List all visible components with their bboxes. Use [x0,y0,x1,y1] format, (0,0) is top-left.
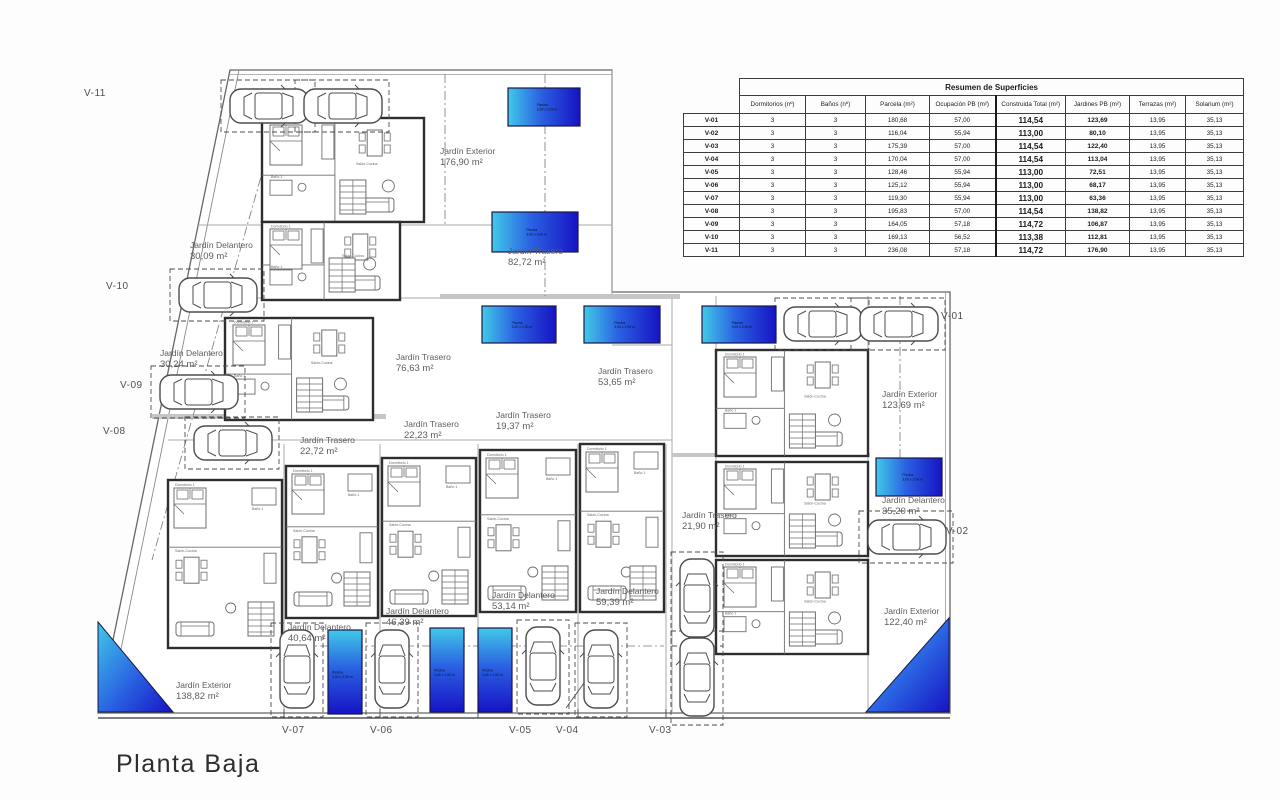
svg-text:Dormitorio 1: Dormitorio 1 [175,483,195,487]
table-column-header: Construida Total (m²) [996,96,1066,114]
table-cell: 13,95 [1130,205,1186,218]
car-icon [868,516,946,558]
table-cell: V-02 [684,127,740,140]
table-cell: 116,04 [866,127,930,140]
unit-label: V-04 [556,725,579,736]
svg-text:Baño 1: Baño 1 [348,493,359,497]
svg-text:Baño 1: Baño 1 [271,175,282,179]
table-cell: 13,95 [1130,218,1186,231]
table-cell: 170,04 [866,153,930,166]
garden-area: 22,72 m² [300,446,355,458]
table-cell: 3 [806,231,866,244]
summary-table: Resumen de SuperficiesDormitorios (nº)Ba… [683,78,1243,257]
table-cell: 106,87 [1066,218,1130,231]
table-cell: 55,94 [930,192,996,205]
car-icon [860,303,938,345]
table-cell: 3 [740,179,806,192]
svg-text:3,00 x 2,00 m: 3,00 x 2,00 m [332,675,353,679]
svg-text:Dormitorio 1: Dormitorio 1 [389,461,409,465]
table-cell: 114,54 [996,140,1066,153]
table-cell: 35,13 [1186,127,1244,140]
svg-text:Dormitorio 1: Dormitorio 1 [293,469,313,473]
svg-text:Baño 1: Baño 1 [252,507,263,511]
house: Dormitorio 1Salón-CocinaBaño 1 [716,350,868,456]
table-cell: 55,94 [930,179,996,192]
table-cell: 113,04 [1066,153,1130,166]
garden-name: Jardín Delantero [882,495,945,506]
garden-label: Jardín Delantero40,64 m² [288,622,351,645]
table-cell: 3 [740,231,806,244]
garden-area: 176,90 m² [440,157,495,169]
svg-text:3,00 x 2,00 m: 3,00 x 2,00 m [537,107,558,111]
table-cell: 13,95 [1130,179,1186,192]
table-cell: 3 [806,153,866,166]
table-cell: 57,18 [930,218,996,231]
table-cell: 13,95 [1130,140,1186,153]
garden-label: Jardín Delantero53,14 m² [492,590,555,613]
table-cell: 57,18 [930,244,996,257]
table-cell: 68,17 [1066,179,1130,192]
garden-name: Jardín Trasero [682,510,737,521]
table-column-header: Parcela (m²) [866,96,930,114]
garden-name: Jardín Trasero [396,352,451,363]
garden-name: Jardín Exterior [176,680,231,691]
svg-text:3,00 x 2,00 m: 3,00 x 2,00 m [526,232,547,236]
svg-text:3,00 x 2,00 m: 3,00 x 2,00 m [902,477,923,481]
garden-label: Jardín Exterior176,90 m² [440,146,495,169]
table-cell: 55,94 [930,166,996,179]
garden-area: 22,23 m² [404,430,459,442]
house: Dormitorio 1Salón-CocinaBaño 1 [286,466,378,618]
table-cell: 57,00 [930,205,996,218]
table-cell: V-11 [684,244,740,257]
page-title: Planta Baja [116,750,260,779]
garden-area: 122,40 m² [884,617,939,629]
unit-label: V-02 [946,526,969,537]
garden-name: Jardín Exterior [882,389,937,400]
garden-area: 82,72 m² [508,257,563,269]
house: Dormitorio 1Salón-CocinaBaño 1 [480,450,576,612]
table-cell: 113,00 [996,127,1066,140]
pool: Piscina3,00 x 2,00 m [508,88,580,126]
house: Dormitorio 1Salón-CocinaBaño 1 [716,462,868,556]
garden-name: Jardín Delantero [288,622,351,633]
table-cell: 13,95 [1130,127,1186,140]
table-cell: 3 [740,205,806,218]
table-cell: 3 [806,114,866,127]
svg-text:Salón-Cocina: Salón-Cocina [587,513,609,517]
garden-label: Jardín Delantero46,39 m² [386,606,449,629]
table-cell: 169,13 [866,231,930,244]
car-icon [522,627,564,705]
table-row: V-0933164,0557,18114,72106,8713,9535,13 [684,218,1244,231]
garden-name: Jardín Delantero [160,348,223,359]
table-cell: V-03 [684,140,740,153]
garden-label: Jardín Exterior123,69 m² [882,389,937,412]
garden-name: Jardín Delantero [386,606,449,617]
svg-text:3,00 x 2,00 m: 3,00 x 2,00 m [732,325,753,329]
table-cell: 72,51 [1066,166,1130,179]
house: Dormitorio 1Salón-CocinaBaño 1 [168,480,282,648]
table-cell: 3 [806,192,866,205]
car-icon [160,371,238,413]
table-cell: 113,00 [996,166,1066,179]
svg-text:Dormitorio 1: Dormitorio 1 [271,225,291,229]
svg-text:Baño 1: Baño 1 [446,485,457,489]
table-row: V-0333175,3957,00114,54122,4013,9535,13 [684,140,1244,153]
table-cell: 35,13 [1186,153,1244,166]
table-cell: 35,13 [1186,179,1244,192]
garden-label: Jardín Delantero30,24 m² [160,348,223,371]
table-row: V-0533128,4655,94113,0072,5113,9535,13 [684,166,1244,179]
svg-text:Baño 1: Baño 1 [634,471,645,475]
unit-label: V-07 [282,725,305,736]
table-cell: 176,90 [1066,244,1130,257]
unit-label: V-08 [103,426,126,437]
table-cell: 3 [740,153,806,166]
table-row: V-0233116,0455,94113,0080,1013,9535,13 [684,127,1244,140]
table-cell: 35,13 [1186,192,1244,205]
table-cell: 35,13 [1186,218,1244,231]
garden-label: Jardín Exterior122,40 m² [884,606,939,629]
table-row: V-0133180,6857,00114,54123,6913,9535,13 [684,114,1244,127]
table-cell: 55,94 [930,127,996,140]
garden-label: Jardín Delantero30,09 m² [190,240,253,263]
house: Dormitorio 1Salón-CocinaBaño 1 [262,222,400,300]
garden-area: 138,82 m² [176,691,231,703]
table-cell: 3 [740,114,806,127]
table-cell: 13,95 [1130,114,1186,127]
garden-name: Jardín Delantero [190,240,253,251]
garden-area: 59,39 m² [596,597,659,609]
table-row: V-0433170,0457,00114,54113,0413,9535,13 [684,153,1244,166]
car-icon [371,630,413,708]
table-cell: 113,00 [996,192,1066,205]
unit-label: V-09 [120,380,143,391]
table-cell: 125,12 [866,179,930,192]
garden-label: Jardín Delantero35,20 m² [882,495,945,518]
pool: Piscina3,00 x 2,00 m [478,628,512,712]
surface-summary: Resumen de SuperficiesDormitorios (nº)Ba… [683,78,1244,257]
table-cell: 114,54 [996,153,1066,166]
svg-text:Salón-Cocina: Salón-Cocina [487,517,509,521]
table-cell: 114,54 [996,114,1066,127]
table-cell: 3 [806,127,866,140]
svg-text:Dormitorio 1: Dormitorio 1 [725,465,745,469]
table-cell: 57,00 [930,140,996,153]
table-cell: 3 [806,140,866,153]
table-cell: 3 [740,140,806,153]
table-cell: 3 [740,218,806,231]
car-icon [230,85,308,127]
svg-text:3,00 x 2,00 m: 3,00 x 2,00 m [614,325,635,329]
table-cell: V-10 [684,231,740,244]
garden-label: Jardín Trasero22,23 m² [404,419,459,442]
table-cell: 80,10 [1066,127,1130,140]
garden-name: Jardín Trasero [300,435,355,446]
garden-label: Jardín Trasero76,63 m² [396,352,451,375]
table-cell: 13,95 [1130,153,1186,166]
svg-text:Salón-Cocina: Salón-Cocina [804,395,826,399]
table-cell: 35,13 [1186,166,1244,179]
garden-name: Jardín Trasero [508,246,563,257]
table-row: V-0633125,1255,94113,0068,1713,9535,13 [684,179,1244,192]
table-cell: 3 [740,192,806,205]
svg-text:Salón-Cocina: Salón-Cocina [311,361,333,365]
svg-text:Dormitorio 1: Dormitorio 1 [725,563,745,567]
table-cell: V-04 [684,153,740,166]
table-cell: 63,36 [1066,192,1130,205]
table-cell: 113,00 [996,179,1066,192]
svg-text:3,00 x 2,00 m: 3,00 x 2,00 m [482,673,503,677]
house: Dormitorio 1Salón-CocinaBaño 1 [382,458,476,616]
garden-area: 30,09 m² [190,251,253,263]
house: Dormitorio 1Salón-CocinaBaño 1 [225,318,373,420]
car-icon [676,638,718,716]
svg-text:3,00 x 2,00 m: 3,00 x 2,00 m [434,673,455,677]
unit-label: V-05 [509,725,532,736]
garden-area: 46,39 m² [386,617,449,629]
garden-area: 35,20 m² [882,506,945,518]
table-cell: 113,38 [996,231,1066,244]
table-column-header: Jardines PB (m²) [1066,96,1130,114]
svg-text:Baño 1: Baño 1 [234,374,245,378]
svg-text:Salón-Cocina: Salón-Cocina [804,599,826,603]
garden-label: Jardín Trasero82,72 m² [508,246,563,269]
car-icon [676,559,718,637]
table-cell: 123,69 [1066,114,1130,127]
garden-label: Jardín Trasero21,90 m² [682,510,737,533]
table-cell: 35,13 [1186,205,1244,218]
svg-text:Salón-Cocina: Salón-Cocina [389,523,411,527]
svg-text:Baño 1: Baño 1 [725,612,736,616]
table-cell: V-08 [684,205,740,218]
table-cell: 138,82 [1066,205,1130,218]
table-cell: 3 [740,244,806,257]
table-cell: 13,95 [1130,244,1186,257]
table-cell: V-06 [684,179,740,192]
garden-label: Jardín Trasero19,37 m² [496,410,551,433]
table-title: Resumen de Superficies [740,79,1244,96]
table-column-header: Solarium (m²) [1186,96,1244,114]
pool: Piscina3,00 x 2,00 m [482,306,556,343]
table-cell: 236,08 [866,244,930,257]
table-cell: 57,00 [930,114,996,127]
table-cell: 3 [806,179,866,192]
table-cell: V-05 [684,166,740,179]
garden-area: 21,90 m² [682,521,737,533]
table-cell: 175,39 [866,140,930,153]
table-column-header: Baños (nº) [806,96,866,114]
garden-area: 40,64 m² [288,633,351,645]
table-column-header: Dormitorios (nº) [740,96,806,114]
table-cell: 3 [740,127,806,140]
table-cell: V-09 [684,218,740,231]
svg-text:Salón-Cocina: Salón-Cocina [175,549,197,553]
table-row: V-1033169,1356,52113,38112,8113,9535,13 [684,231,1244,244]
pool: Piscina3,00 x 2,00 m [430,628,464,712]
garden-label: Jardín Exterior138,82 m² [176,680,231,703]
table-row: V-0833195,8357,00114,54138,8213,9535,13 [684,205,1244,218]
garden-name: Jardín Delantero [492,590,555,601]
garden-name: Jardín Delantero [596,586,659,597]
table-cell: 114,54 [996,205,1066,218]
garden-name: Jardín Trasero [496,410,551,421]
svg-text:Dormitorio 1: Dormitorio 1 [487,453,507,457]
table-cell: 3 [806,244,866,257]
house: Dormitorio 1Salón-CocinaBaño 1 [262,118,424,222]
table-cell: 35,13 [1186,114,1244,127]
svg-text:Baño 1: Baño 1 [271,265,282,269]
pool: Piscina3,00 x 2,00 m [702,306,776,343]
table-cell: 35,13 [1186,231,1244,244]
unit-label: V-06 [370,725,393,736]
house: Dormitorio 1Salón-CocinaBaño 1 [716,560,868,654]
table-cell: 164,05 [866,218,930,231]
table-cell: 57,00 [930,153,996,166]
svg-text:3,00 x 2,00 m: 3,00 x 2,00 m [512,325,533,329]
table-cell: 112,81 [1066,231,1130,244]
table-cell: 114,72 [996,218,1066,231]
floor-plan-page: Dormitorio 1Salón-CocinaBaño 1Dormitorio… [0,0,1280,800]
unit-label: V-11 [84,88,106,99]
car-icon [580,630,622,708]
table-cell: 3 [806,166,866,179]
svg-text:Baño 1: Baño 1 [546,477,557,481]
table-row: V-0733119,3055,94113,0063,3613,9535,13 [684,192,1244,205]
svg-text:Dormitorio 1: Dormitorio 1 [587,447,607,451]
garden-name: Jardín Trasero [598,366,653,377]
garden-name: Jardín Exterior [440,146,495,157]
garden-area: 76,63 m² [396,363,451,375]
table-cell: 119,30 [866,192,930,205]
table-column-header: Terrazas (m²) [1130,96,1186,114]
pool: Piscina3,00 x 2,00 m [876,458,942,496]
table-cell: 3 [806,205,866,218]
car-icon [194,422,272,464]
table-cell: 122,40 [1066,140,1130,153]
table-cell: 3 [806,218,866,231]
garden-area: 30,24 m² [160,359,223,371]
garden-area: 19,37 m² [496,421,551,433]
garden-label: Jardín Trasero22,72 m² [300,435,355,458]
svg-text:Salón-Cocina: Salón-Cocina [342,254,364,258]
table-cell: 114,72 [996,244,1066,257]
table-cell: V-07 [684,192,740,205]
pool: Piscina3,00 x 2,00 m [584,306,660,343]
table-cell: 195,83 [866,205,930,218]
garden-area: 53,65 m² [598,377,653,389]
table-cell: 13,95 [1130,192,1186,205]
garden-label: Jardín Trasero53,65 m² [598,366,653,389]
svg-text:Salón-Cocina: Salón-Cocina [293,529,315,533]
garden-label: Jardín Delantero59,39 m² [596,586,659,609]
table-cell: 35,13 [1186,244,1244,257]
car-icon [304,85,382,127]
table-cell: 180,68 [866,114,930,127]
garden-name: Jardín Exterior [884,606,939,617]
car-icon [179,274,257,316]
table-cell: 128,46 [866,166,930,179]
svg-text:Dormitorio 1: Dormitorio 1 [725,353,745,357]
unit-label: V-03 [649,725,672,736]
garden-name: Jardín Trasero [404,419,459,430]
car-icon [784,303,862,345]
svg-text:Salón-Cocina: Salón-Cocina [356,162,378,166]
table-cell: 56,52 [930,231,996,244]
table-cell: 13,95 [1130,166,1186,179]
table-cell: 13,95 [1130,231,1186,244]
svg-text:Dormitorio 1: Dormitorio 1 [234,321,254,325]
table-cell: 3 [740,166,806,179]
table-cell: 35,13 [1186,140,1244,153]
table-column-header: Ocupación PB (m²) [930,96,996,114]
svg-text:Baño 1: Baño 1 [725,408,736,412]
table-cell: V-01 [684,114,740,127]
garden-area: 123,69 m² [882,400,937,412]
unit-label: V-10 [106,281,129,292]
svg-text:Salón-Cocina: Salón-Cocina [804,501,826,505]
garden-area: 53,14 m² [492,601,555,613]
unit-label: V-01 [941,311,964,322]
table-row: V-1133236,0857,18114,72176,9013,9535,13 [684,244,1244,257]
